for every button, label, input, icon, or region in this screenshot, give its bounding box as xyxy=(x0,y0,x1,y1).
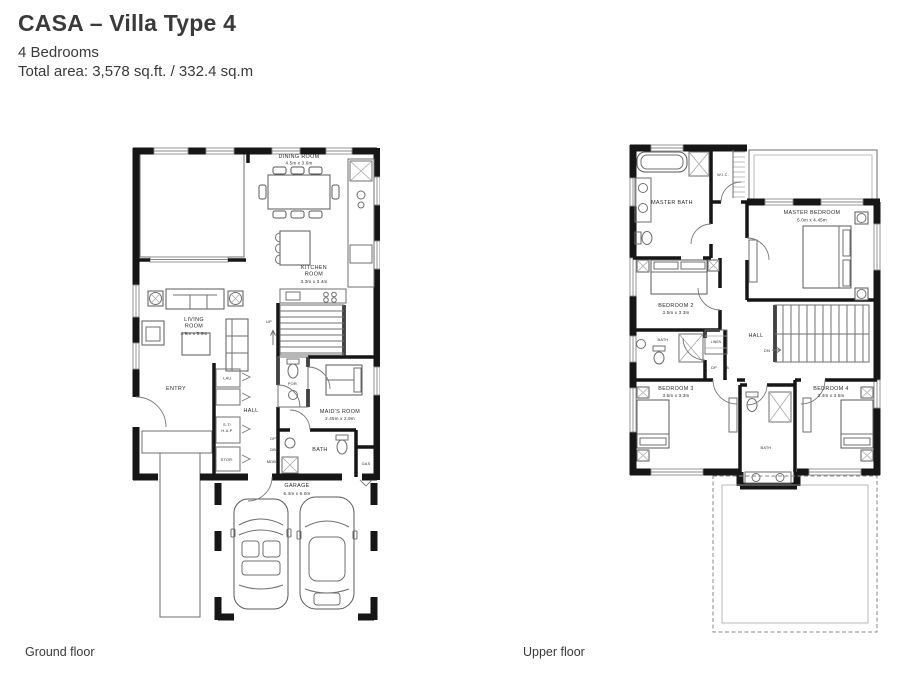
entry-label: ENTRY xyxy=(166,386,186,392)
dining-room-dims: 4.5m x 3.6m xyxy=(286,161,313,166)
gas-label: GAS xyxy=(362,461,371,466)
up-label: UP xyxy=(266,319,272,324)
kitchen-dims: 3.3m x 3.4m xyxy=(301,279,328,284)
uf-roof-terrace xyxy=(713,476,877,632)
total-area: Total area: 3,578 sq.ft. / 332.4 sq.m xyxy=(18,63,253,80)
gf-driveway xyxy=(142,431,212,617)
uf-stairs xyxy=(772,305,869,362)
master-bath-label: MASTER BATH xyxy=(651,200,693,206)
bath2-label: BATH xyxy=(658,337,669,342)
gf-maids-room xyxy=(326,365,362,395)
maids-room-label: MAID'S ROOM xyxy=(320,409,360,415)
dining-room-label: DINING ROOM xyxy=(279,154,320,160)
bedroom4-label: BEDROOM 4 xyxy=(813,386,849,392)
bedrooms-subtitle: 4 Bedrooms xyxy=(18,44,253,61)
gf-car-right xyxy=(297,497,357,609)
uf-bedroom3 xyxy=(637,387,737,461)
living-room-label-2: ROOM xyxy=(185,324,203,330)
living-room-label-1: LIVING xyxy=(184,317,204,323)
st-hap-label-1: S.T/ xyxy=(223,422,232,427)
wic-label: W.I.C. xyxy=(717,172,729,177)
page-title: CASA – Villa Type 4 xyxy=(18,10,253,37)
garage-dims: 6.4m x 6.0m xyxy=(284,491,311,496)
garage-label: GARAGE xyxy=(284,483,309,489)
ground-floor-plan: DINING ROOM 4.5m x 3.6m KITCHEN ROOM 3.3… xyxy=(130,145,380,640)
master-bedroom-dims: 5.0m x 4.45m xyxy=(797,218,827,223)
shared-bath-label: BATH xyxy=(761,445,772,450)
uf-shared-bath xyxy=(745,392,791,483)
gf-closets xyxy=(216,369,250,471)
upper-floor-caption: Upper floor xyxy=(523,645,585,659)
maids-room-dims: 2.45m x 2.9m xyxy=(325,416,355,421)
mdb-label: MDB xyxy=(267,459,276,464)
header: CASA – Villa Type 4 4 Bedrooms Total are… xyxy=(18,10,253,82)
gf-bath-label: BATH xyxy=(312,447,327,453)
dp-label: DP xyxy=(270,436,276,441)
powder-room-label: POR. xyxy=(288,381,298,386)
uf-master-bath xyxy=(635,152,709,245)
dn-label: DN xyxy=(764,348,770,353)
uf-bedroom2 xyxy=(637,260,719,294)
gf-stairs xyxy=(271,305,345,355)
gf-dining-table xyxy=(259,167,339,218)
gf-living-furniture xyxy=(142,289,248,371)
uf-dp-label: DP xyxy=(711,365,717,370)
kitchen-label-2: ROOM xyxy=(305,272,323,278)
uf-wic xyxy=(733,150,745,198)
kitchen-label-1: KITCHEN xyxy=(301,265,327,271)
uf-bath2 xyxy=(637,330,728,364)
uf-bedroom4 xyxy=(803,387,873,461)
upper-floor-plan: MASTER BATH W.I.C. MASTER BEDROOM 5.0m x… xyxy=(625,140,885,635)
bedroom3-label: BEDROOM 3 xyxy=(658,386,694,392)
gf-interior-walls xyxy=(134,149,377,477)
bedroom2-dims: 3.5m x 3.3m xyxy=(663,310,690,315)
uf-master-bed xyxy=(749,212,868,300)
storage-label: STOR. xyxy=(221,457,234,462)
uf-balcony xyxy=(749,150,877,202)
bedroom4-dims: 3.4m x 3.5m xyxy=(818,393,845,398)
bedroom3-dims: 3.6m x 3.3m xyxy=(663,393,690,398)
floorplan-page: CASA – Villa Type 4 4 Bedrooms Total are… xyxy=(0,0,923,691)
bedroom2-label: BEDROOM 2 xyxy=(658,303,694,309)
master-bedroom-label: MASTER BEDROOM xyxy=(784,210,841,216)
gf-hall-label: HALL xyxy=(244,408,259,414)
laundry-label: LAU. xyxy=(223,376,232,381)
linen-label: LINEN xyxy=(711,340,722,344)
ground-floor-caption: Ground floor xyxy=(25,645,94,659)
living-room-dims: 4.9m x 5.9m xyxy=(181,331,208,336)
gf-car-left xyxy=(231,499,291,609)
uf-hall-label: HALL xyxy=(749,333,764,339)
st-hap-label-2: H.A.P xyxy=(221,428,232,433)
db-label: DB xyxy=(270,447,276,452)
uf-db-label: DB xyxy=(723,365,729,370)
gf-terrace xyxy=(140,153,244,257)
